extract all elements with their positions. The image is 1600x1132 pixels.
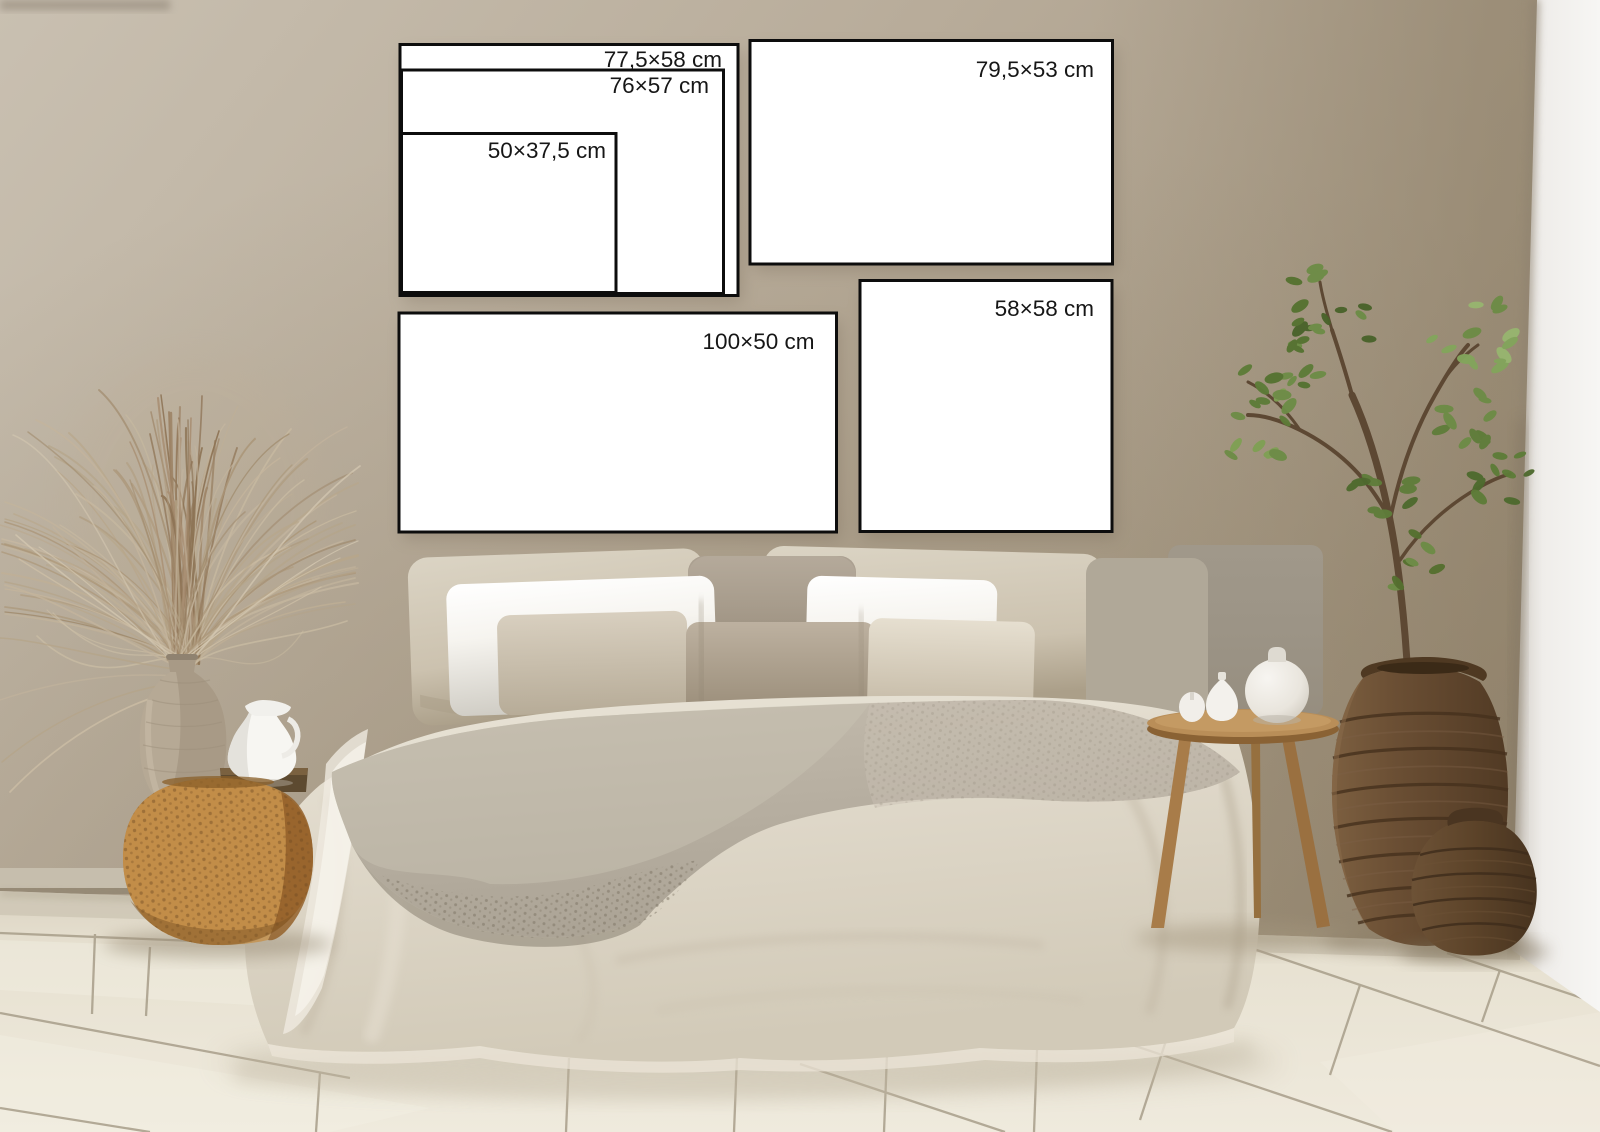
svg-text:100×50 cm: 100×50 cm	[703, 329, 815, 354]
svg-text:76×57 cm: 76×57 cm	[610, 73, 709, 98]
svg-text:58×58 cm: 58×58 cm	[995, 296, 1094, 321]
svg-text:79,5×53 cm: 79,5×53 cm	[976, 57, 1094, 82]
svg-text:50×37,5 cm: 50×37,5 cm	[488, 138, 606, 163]
svg-text:77,5×58 cm: 77,5×58 cm	[604, 47, 722, 72]
